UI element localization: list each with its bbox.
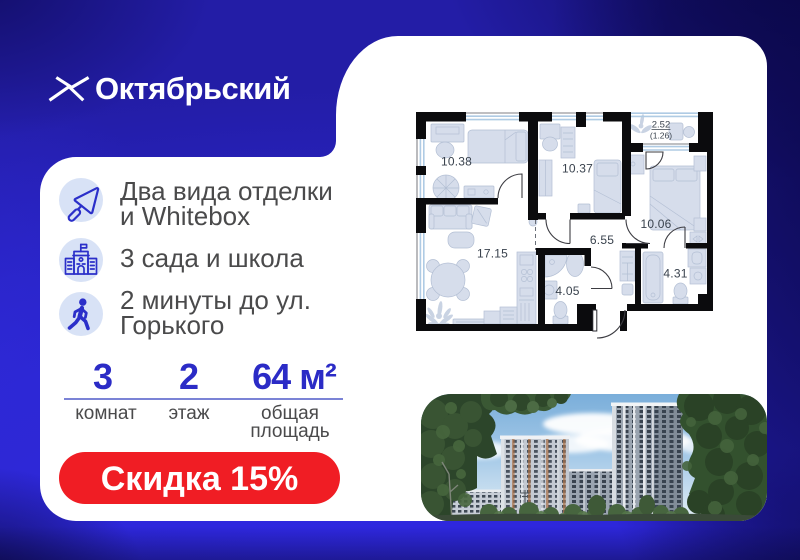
svg-text:17.15: 17.15 [477, 247, 508, 261]
svg-text:10.37: 10.37 [562, 162, 593, 176]
svg-text:4.05: 4.05 [555, 284, 579, 298]
svg-text:4.31: 4.31 [663, 267, 687, 281]
svg-text:2.52: 2.52 [652, 120, 671, 131]
svg-text:10.38: 10.38 [441, 155, 472, 169]
svg-text:(1.26): (1.26) [650, 131, 672, 141]
svg-text:6.55: 6.55 [590, 233, 614, 247]
svg-text:10.06: 10.06 [640, 217, 671, 231]
